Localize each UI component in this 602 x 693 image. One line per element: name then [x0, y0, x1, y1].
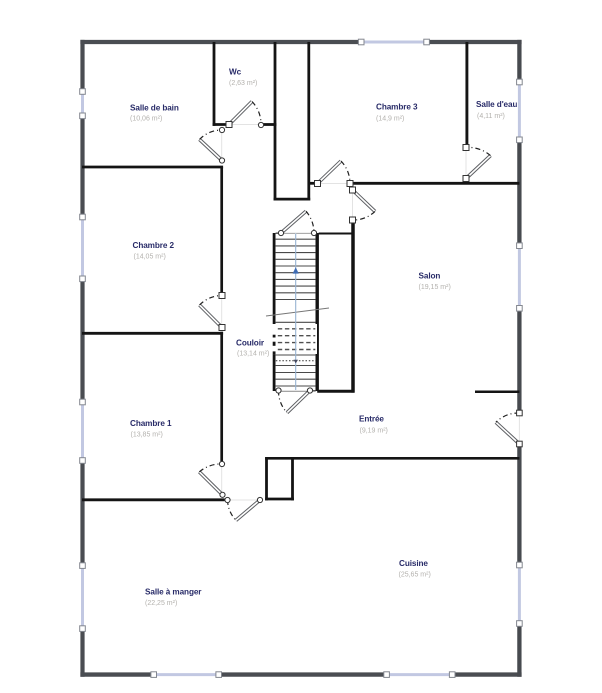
- svg-text:(22,25 m²): (22,25 m²): [145, 600, 177, 607]
- svg-text:Cuisine: Cuisine: [399, 559, 428, 568]
- svg-text:(9,19 m²): (9,19 m²): [360, 428, 388, 435]
- svg-text:Salle d'eau: Salle d'eau: [476, 100, 517, 109]
- svg-text:(19,15 m²): (19,15 m²): [419, 284, 451, 291]
- svg-text:Chambre 1: Chambre 1: [130, 419, 172, 428]
- svg-text:(13,85 m²): (13,85 m²): [131, 432, 163, 439]
- svg-text:Chambre 2: Chambre 2: [133, 241, 175, 250]
- svg-text:(2,63 m²): (2,63 m²): [229, 80, 257, 87]
- svg-text:Entrée: Entrée: [359, 415, 384, 424]
- svg-text:(4,11 m²): (4,11 m²): [477, 113, 505, 120]
- svg-text:Wc: Wc: [229, 68, 242, 77]
- svg-text:Salon: Salon: [419, 272, 441, 281]
- svg-text:(14,05 m²): (14,05 m²): [134, 254, 166, 261]
- svg-text:(10,06 m²): (10,06 m²): [130, 116, 162, 123]
- svg-text:Couloir: Couloir: [236, 339, 265, 348]
- svg-text:(25,65 m²): (25,65 m²): [399, 572, 431, 579]
- svg-text:(14,9 m²): (14,9 m²): [376, 116, 404, 123]
- svg-text:Chambre 3: Chambre 3: [376, 103, 418, 112]
- svg-text:Salle de bain: Salle de bain: [130, 104, 179, 113]
- svg-text:Salle à manger: Salle à manger: [145, 588, 202, 597]
- svg-text:(13,14 m²): (13,14 m²): [237, 351, 269, 358]
